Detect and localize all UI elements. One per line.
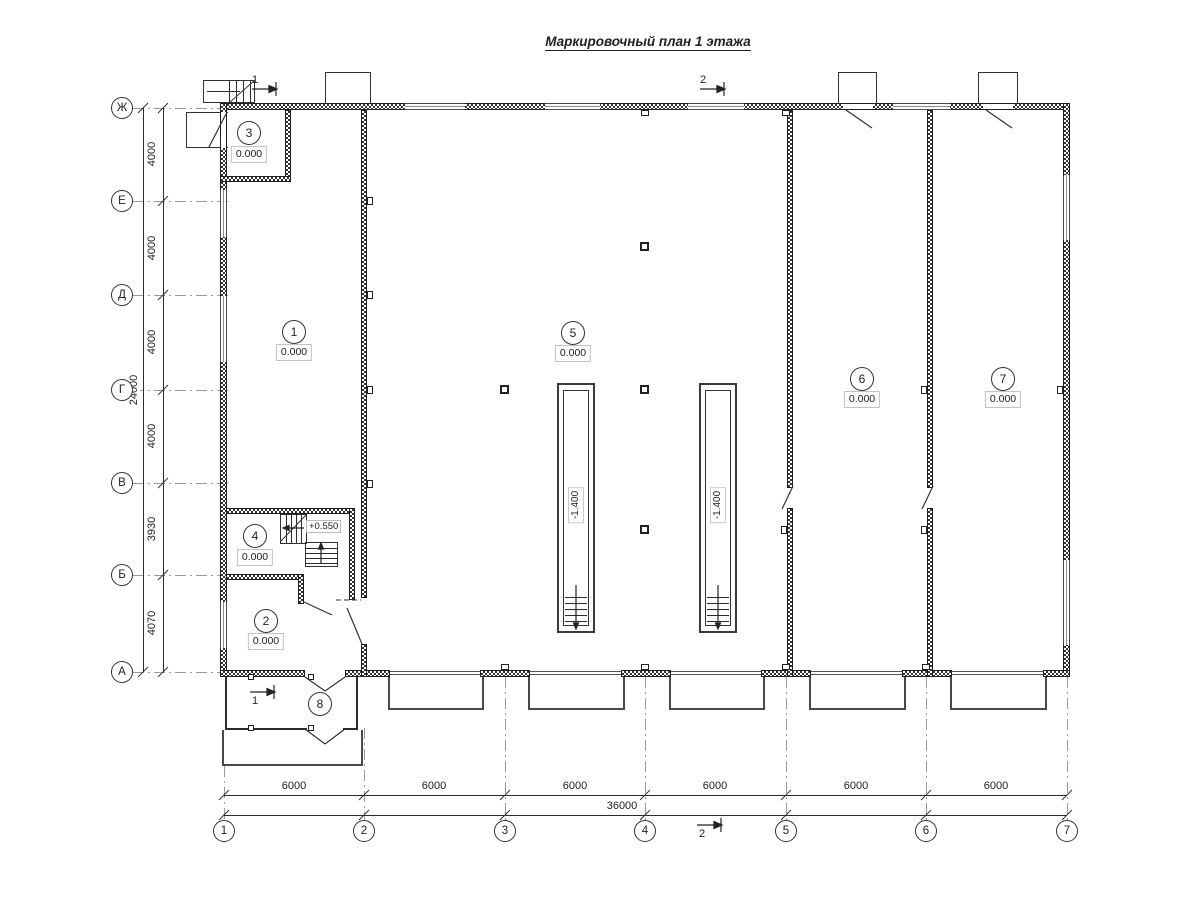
pilaster [782, 664, 790, 670]
wall-interior-axis6 [927, 110, 933, 488]
wall-interior-axis2 [361, 110, 367, 598]
gate-opening [952, 671, 1043, 675]
stair-tread [291, 514, 292, 544]
elevation-label: 0.000 [844, 391, 880, 408]
loading-apron [388, 677, 484, 710]
section-arrows [250, 82, 725, 832]
stair-tread [286, 514, 287, 544]
grid-line-axis-4 [645, 677, 646, 826]
room-marker-4: 4 [243, 524, 267, 548]
pit-ladder [565, 621, 587, 622]
wall-pier [621, 670, 671, 677]
window [688, 103, 744, 110]
wall-room3-south [220, 176, 291, 182]
dim-label: 6000 [420, 780, 448, 792]
axis-bubble-b: Б [111, 564, 133, 586]
dim-line-left-total [143, 108, 144, 672]
grid-line-axis-d [133, 295, 230, 296]
wall-pier [1043, 670, 1070, 677]
stair-tread [243, 80, 244, 103]
loading-apron [950, 677, 1047, 710]
room-marker-6: 6 [850, 367, 874, 391]
stair-tread [305, 558, 338, 559]
stair-tread [305, 553, 338, 554]
axis-bubble-5: 5 [775, 820, 797, 842]
stair-tread [305, 563, 338, 564]
axis-bubble-3: 3 [494, 820, 516, 842]
grid-line-axis-b [133, 575, 230, 576]
stair-flight-upper [280, 514, 307, 544]
elevation-label: 0.000 [555, 345, 591, 362]
grid-line-axis-6 [926, 677, 927, 826]
pit-elevation-label: -1.400 [710, 487, 726, 523]
room-marker-3: 3 [237, 121, 261, 145]
axis-bubble-g: Г [111, 379, 133, 401]
loading-apron [669, 677, 765, 710]
gate-opening [390, 671, 480, 675]
grid-line-axis-v [133, 483, 230, 484]
wall-interior-axis6 [927, 508, 933, 677]
pilaster [641, 110, 649, 116]
pilaster [922, 664, 930, 670]
dim-label: 4000 [146, 234, 158, 262]
pit-ladder [565, 609, 587, 610]
pit-ladder [707, 609, 729, 610]
window [545, 103, 600, 110]
window [405, 103, 465, 110]
dim-label: 4070 [146, 609, 158, 637]
stair-rail [207, 91, 240, 92]
wall-interior-axis5 [787, 110, 793, 488]
axis-bubble-4: 4 [634, 820, 656, 842]
gate-opening [530, 671, 621, 675]
elevation-label: 0.000 [985, 391, 1021, 408]
window [220, 602, 227, 648]
wall-exterior-south [220, 670, 305, 677]
dim-label: 4000 [146, 328, 158, 356]
room-marker-8: 8 [308, 692, 332, 716]
axis-bubble-v: В [111, 472, 133, 494]
grid-line-axis-zh [133, 108, 230, 109]
wall-stub [298, 574, 304, 604]
stair-tread [305, 548, 338, 549]
grid-line-axis-g [133, 390, 230, 391]
pilaster [1057, 386, 1063, 394]
stair-tread [296, 514, 297, 544]
stair-tread [301, 514, 302, 544]
section-mark-2-label: 2 [699, 828, 705, 840]
wall-pier [345, 670, 390, 677]
dim-label: 6000 [701, 780, 729, 792]
axis-bubble-zh: Ж [111, 97, 133, 119]
platform-edge [222, 764, 363, 766]
dim-label: 6000 [842, 780, 870, 792]
section-mark-1-label: 1 [252, 695, 258, 707]
window [1063, 560, 1070, 645]
platform-edge [361, 730, 363, 766]
room-marker-7: 7 [991, 367, 1015, 391]
pilaster [308, 674, 314, 680]
section-mark-2-label: 2 [700, 74, 706, 86]
platform-edge [222, 730, 224, 766]
grid-line-axis-5 [786, 677, 787, 826]
window [893, 103, 950, 110]
dim-label: 6000 [280, 780, 308, 792]
dim-line-bottom-total [224, 815, 1067, 816]
pit-ladder [707, 603, 729, 604]
room-marker-1: 1 [282, 320, 306, 344]
axis-bubble-6: 6 [915, 820, 937, 842]
pilaster [921, 526, 927, 534]
wall-pier [761, 670, 811, 677]
canopy [978, 72, 1018, 105]
door-opening [843, 104, 873, 109]
pilaster [641, 664, 649, 670]
column [640, 385, 649, 394]
door-opening [983, 104, 1013, 109]
loading-apron [809, 677, 906, 710]
stair-tread [250, 80, 251, 103]
wall-interior-axis2 [361, 644, 367, 677]
pilaster [501, 664, 509, 670]
wall-room4-east [349, 508, 355, 600]
window [1063, 175, 1070, 240]
column [640, 242, 649, 251]
axis-bubble-2: 2 [353, 820, 375, 842]
dim-label-total: 36000 [605, 800, 640, 812]
pit-ladder [565, 615, 587, 616]
pilaster [782, 110, 790, 116]
vestibule-wall [343, 728, 358, 730]
pit-elevation-label: -1.400 [568, 487, 584, 523]
elevation-label: 0.000 [276, 344, 312, 361]
door-opening [221, 112, 226, 148]
dim-label: 3930 [146, 515, 158, 543]
wall-pier [480, 670, 530, 677]
dim-label: 6000 [561, 780, 589, 792]
pit-ladder [707, 621, 729, 622]
pit-ladder [565, 603, 587, 604]
wall-room3-east [285, 110, 291, 182]
elevation-label: 0.000 [248, 633, 284, 650]
vestibule-wall [225, 677, 227, 728]
pilaster [367, 197, 373, 205]
pilaster [248, 674, 254, 680]
loading-apron [528, 677, 625, 710]
pit-ladder [707, 597, 729, 598]
room-marker-5: 5 [561, 321, 585, 345]
grid-line-axis-e [133, 201, 230, 202]
canopy [325, 72, 371, 105]
wall-room4-south [226, 574, 304, 580]
grid-line-axis-a [133, 672, 230, 673]
section-mark-1-label: 1 [252, 74, 258, 86]
grid-line-axis-7 [1067, 677, 1068, 826]
dim-line-left [163, 108, 164, 672]
drawing-overlay [0, 0, 1200, 900]
axis-bubble-e: Е [111, 190, 133, 212]
grid-line-axis-1 [224, 766, 225, 826]
pit-ladder [565, 597, 587, 598]
dim-label: 6000 [982, 780, 1010, 792]
elevation-label: 0.000 [237, 549, 273, 566]
vestibule-wall [225, 728, 307, 730]
axis-bubble-a: А [111, 661, 133, 683]
pilaster [367, 386, 373, 394]
column [500, 385, 509, 394]
room-marker-2: 2 [254, 609, 278, 633]
dim-line-bottom [224, 795, 1067, 796]
axis-bubble-1: 1 [213, 820, 235, 842]
plan-title-text: Маркировочный план 1 этажа [545, 34, 751, 51]
elevation-label: 0.000 [231, 146, 267, 163]
stair-elevation-label: +0.550 [306, 520, 341, 533]
pilaster [367, 480, 373, 488]
window [220, 190, 227, 237]
plan-title: Маркировочный план 1 этажа [448, 34, 848, 49]
pilaster [308, 725, 314, 731]
gate-opening [811, 671, 902, 675]
dim-label: 4000 [146, 422, 158, 450]
axis-bubble-7: 7 [1056, 820, 1078, 842]
wall-interior-axis5 [787, 508, 793, 677]
grid-line-axis-3 [505, 677, 506, 826]
canopy [838, 72, 877, 105]
column [640, 525, 649, 534]
pilaster [781, 526, 787, 534]
gate-opening [671, 671, 761, 675]
axis-bubble-d: Д [111, 284, 133, 306]
pit-ladder [707, 615, 729, 616]
floor-plan: Маркировочный план 1 этажа [0, 0, 1200, 900]
grid-line-axis-2 [364, 728, 365, 826]
dim-label: 4000 [146, 140, 158, 168]
pilaster [367, 291, 373, 299]
vestibule-wall [356, 677, 358, 728]
pilaster [921, 386, 927, 394]
door-leaves [209, 110, 1012, 744]
window [220, 296, 227, 362]
pilaster [248, 725, 254, 731]
